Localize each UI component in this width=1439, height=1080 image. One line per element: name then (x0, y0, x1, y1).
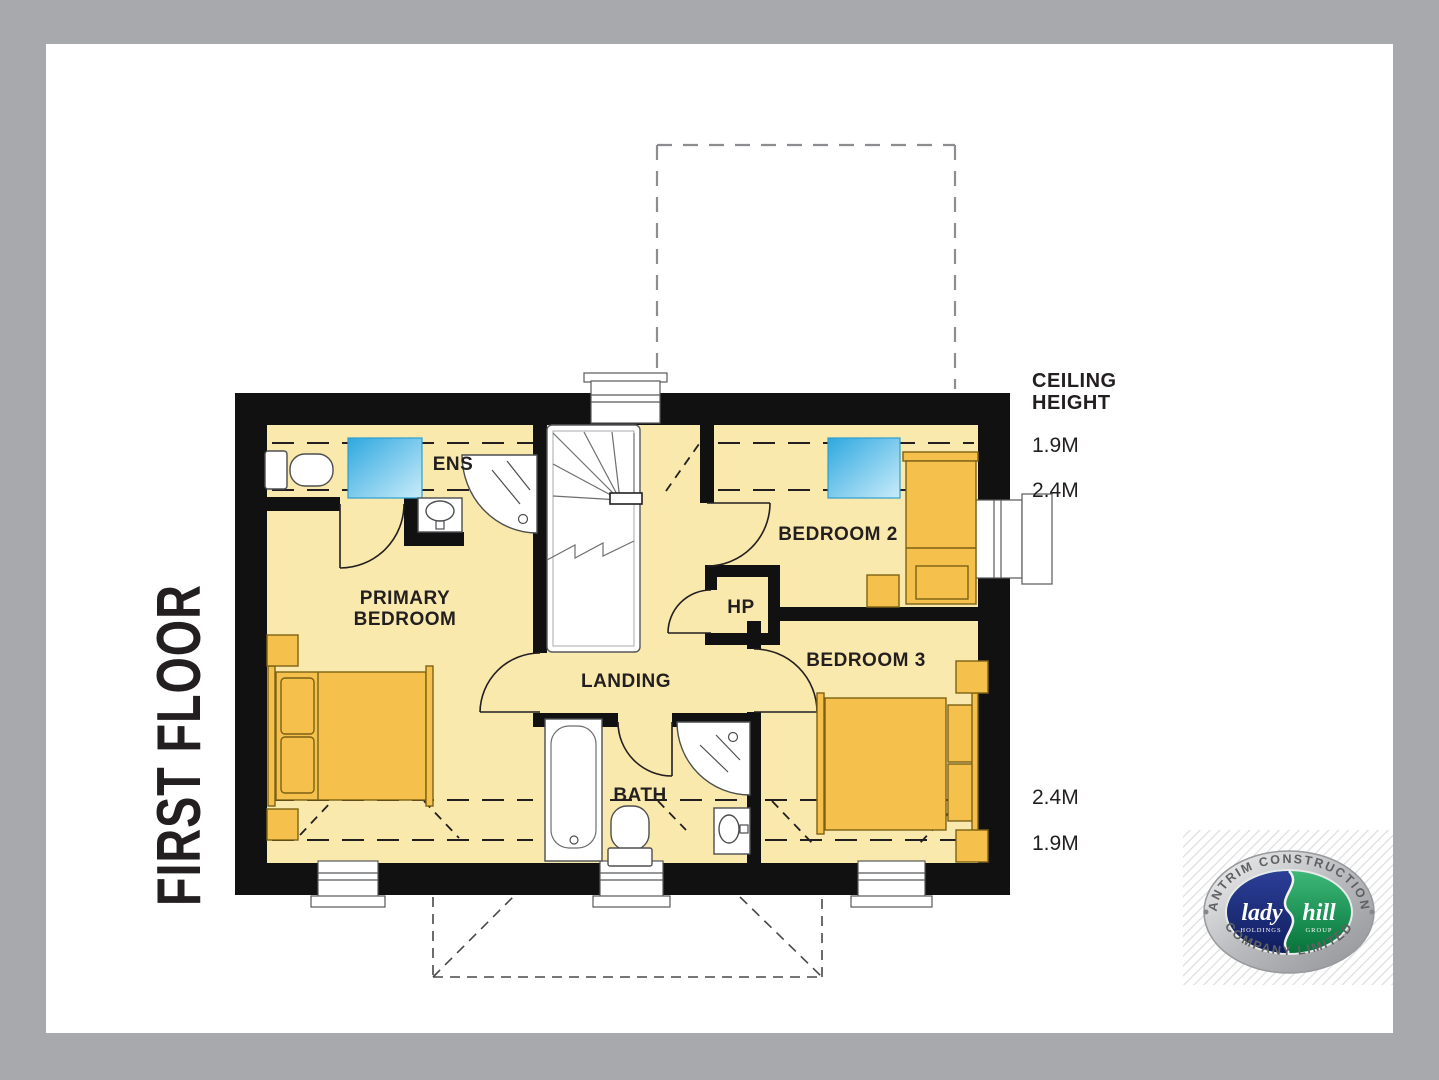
window-stairs-top (584, 373, 667, 423)
logo-sub-group: GROUP (1305, 927, 1332, 934)
bed-bedroom2 (903, 452, 978, 604)
nightstand-bedroom2 (867, 575, 899, 607)
label-bedroom2: BEDROOM 2 (778, 524, 898, 545)
logo-dot-right (1370, 910, 1375, 915)
company-logo: ANTRIM CONSTRUCTION COMPANY LIMITED lady… (1183, 830, 1393, 985)
ceiling-lower-1: 2.4M (1032, 786, 1079, 809)
nightstand-bedroom3-bottom (956, 830, 988, 862)
sink-bath (714, 808, 750, 854)
skylight-ens (348, 438, 422, 498)
bed-primary (268, 666, 433, 806)
label-hp: HP (727, 597, 754, 618)
ceiling-height-title-line1: CEILING (1032, 370, 1117, 392)
nightstand-primary-bottom (267, 809, 298, 840)
toilet-bath (608, 806, 652, 866)
logo-word-lady: lady (1241, 900, 1283, 926)
label-bedroom3: BEDROOM 3 (806, 650, 926, 671)
staircase (547, 425, 642, 652)
ceiling-upper-2: 2.4M (1032, 479, 1079, 502)
logo-dot-left (1204, 910, 1209, 915)
logo-sub-holdings: HOLDINGS (1240, 927, 1281, 934)
label-primary-line1: PRIMARY (360, 588, 450, 609)
label-ens: ENS (433, 454, 474, 475)
ceiling-lower-2: 1.9M (1032, 832, 1079, 855)
label-bath: BATH (613, 785, 666, 806)
toilet-ens (265, 451, 333, 489)
bathtub (545, 719, 602, 861)
label-landing: LANDING (581, 671, 671, 692)
logo-word-hill: hill (1302, 900, 1336, 926)
bed-bedroom3 (817, 693, 978, 834)
nightstand-primary-top (267, 635, 298, 666)
nightstand-bedroom3-top (956, 661, 988, 693)
skylight-bedroom2 (828, 438, 900, 498)
sink-ens (418, 498, 462, 532)
window-primary-bedroom (311, 861, 385, 907)
floor-plan-drawing: ENS PRIMARY BEDROOM LANDING HP BEDROOM 2… (0, 0, 1439, 1080)
window-bath (593, 861, 670, 907)
label-primary-line2: BEDROOM (354, 609, 457, 630)
window-bedroom3 (851, 861, 932, 907)
page-title: FIRST FLOOR (143, 584, 213, 906)
ceiling-upper-1: 1.9M (1032, 434, 1079, 457)
stair-newel (610, 493, 642, 504)
screenshot-stage: ENS PRIMARY BEDROOM LANDING HP BEDROOM 2… (0, 0, 1439, 1080)
window-bedroom2-side (976, 494, 1052, 584)
ceiling-height-title-line2: HEIGHT (1032, 392, 1111, 414)
